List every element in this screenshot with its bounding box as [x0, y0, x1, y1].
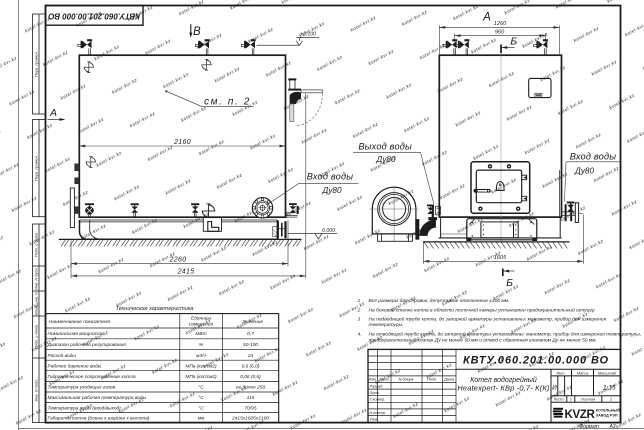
- svg-text:2: 2: [357, 308, 361, 314]
- svg-text:Гидравлическое сопротивление к: Гидравлическое сопротивление котла: [48, 374, 136, 380]
- svg-text:Пров.: Пров.: [370, 390, 380, 395]
- svg-text:KVZR: KVZR: [565, 408, 596, 421]
- svg-text:70/95: 70/95: [244, 405, 256, 411]
- svg-text:Габариты котла (длина х ширина: Габариты котла (длина х ширина х высота): [48, 416, 150, 422]
- svg-text:3: 3: [358, 316, 361, 322]
- svg-text:°С: °С: [198, 385, 204, 391]
- svg-text:м3/ч: м3/ч: [196, 353, 206, 359]
- svg-text:1260: 1260: [494, 21, 507, 27]
- svg-text:В: В: [193, 26, 201, 38]
- svg-text:960: 960: [495, 29, 505, 35]
- svg-text:+2.100: +2.100: [300, 32, 316, 38]
- svg-text:Б: Б: [506, 277, 513, 289]
- svg-text:Т.контр.: Т.контр.: [370, 397, 386, 402]
- svg-text:%: %: [199, 342, 204, 348]
- svg-text:Подп. и дата: Подп. и дата: [34, 324, 39, 349]
- svg-text:мм: мм: [198, 417, 205, 422]
- svg-text:Номинальная мощность: Номинальная мощность: [48, 331, 105, 337]
- svg-text:115: 115: [247, 395, 255, 401]
- svg-text:Ду80: Ду80: [574, 166, 595, 175]
- svg-text:0,06 (0,6): 0,06 (0,6): [240, 374, 261, 380]
- svg-text:1: 1: [570, 396, 572, 401]
- svg-text:Утв.: Утв.: [370, 417, 379, 422]
- svg-text:Формат: Формат: [579, 424, 599, 430]
- svg-text:А3: А3: [608, 424, 615, 430]
- svg-text:2415х1605х2100: 2415х1605х2100: [231, 416, 269, 422]
- svg-text:Выход воды: Выход воды: [358, 142, 412, 152]
- svg-text:Листов: Листов: [580, 396, 595, 401]
- svg-text:1605: 1605: [494, 255, 507, 261]
- svg-text:2260: 2260: [169, 256, 187, 263]
- svg-text:Котел водогрейный: Котел водогрейный: [470, 376, 537, 384]
- svg-text:На боковой стенке котла в обла: На боковой стенке котла в области топочн…: [369, 307, 596, 314]
- svg-text:Ду80: Ду80: [375, 155, 396, 164]
- svg-text:см. п. 2: см. п. 2: [204, 97, 251, 108]
- svg-text:Дата: Дата: [443, 377, 455, 382]
- svg-text:2160: 2160: [173, 139, 191, 146]
- svg-text:Подп. и дата: Подп. и дата: [34, 232, 39, 257]
- svg-text:ЗАВОД РЭП: ЗАВОД РЭП: [596, 414, 618, 418]
- svg-text:1:15: 1:15: [603, 384, 616, 391]
- svg-text:Лист: Лист: [552, 396, 564, 401]
- svg-text:МВт: МВт: [195, 331, 206, 337]
- svg-text:Расход воды: Расход воды: [48, 353, 77, 359]
- svg-text:Температура уходящих газов: Температура уходящих газов: [48, 385, 116, 391]
- svg-text:не более 250: не более 250: [236, 385, 266, 391]
- svg-text:МПа (кгс/см2): МПа (кгс/см2): [185, 363, 217, 369]
- svg-text:Значение: Значение: [242, 319, 263, 325]
- svg-text:24: 24: [247, 353, 254, 359]
- svg-text:А: А: [49, 107, 57, 119]
- svg-text:Масса: Масса: [577, 371, 589, 376]
- svg-text:Единицы: Единицы: [191, 315, 212, 321]
- svg-text:Изм.: Изм.: [369, 377, 377, 382]
- svg-text:Лит.: Лит.: [555, 371, 565, 376]
- svg-text:Перв. примен.: Перв. примен.: [34, 155, 39, 181]
- svg-text:Температура воды (вход/выход): Температура воды (вход/выход): [48, 405, 122, 411]
- svg-text:А: А: [482, 11, 491, 23]
- svg-text:Взам. инв. N: Взам. инв. N: [34, 292, 39, 315]
- svg-text:Разраб.: Разраб.: [370, 384, 384, 389]
- svg-text:На подводящей трубе котла, до: На подводящей трубе котла, до запорной а…: [369, 315, 607, 322]
- svg-text:Рабочее давление воды: Рабочее давление воды: [48, 363, 102, 369]
- svg-text:И: И: [552, 384, 557, 391]
- svg-text:Все размеры для справок, допус: Все размеры для справок, допустимое откл…: [369, 298, 510, 304]
- svg-text:Инв. N подл.: Инв. N подл.: [34, 379, 39, 402]
- svg-text:2415: 2415: [177, 269, 195, 276]
- svg-text:0.000: 0.000: [322, 228, 335, 234]
- svg-text:измерения: измерения: [189, 322, 213, 327]
- svg-text:МПа (кгс/см2): МПа (кгс/см2): [185, 374, 217, 380]
- svg-text:N докум.: N докум.: [399, 377, 415, 382]
- svg-text:Ду80: Ду80: [321, 186, 342, 195]
- svg-text:Лист: Лист: [378, 377, 390, 382]
- svg-text:КВТУ.060.201.00.000 ВО: КВТУ.060.201.00.000 ВО: [48, 12, 141, 21]
- svg-text:На отводящей трубе котла, до з: На отводящей трубе котла, до запорной ар…: [369, 330, 642, 337]
- svg-text:Вход воды: Вход воды: [570, 152, 616, 162]
- svg-text:Heatexpert- КВр -0,7- К(К): Heatexpert- КВр -0,7- К(К): [457, 384, 550, 393]
- svg-text:КВТУ.060.201.00.000 ВО: КВТУ.060.201.00.000 ВО: [463, 354, 609, 366]
- svg-text:температуры.: температуры.: [369, 323, 404, 328]
- svg-text:1: 1: [358, 298, 361, 304]
- svg-text:°С: °С: [198, 405, 204, 411]
- svg-text:Максимальная рабочая температу: Максимальная рабочая температура воды: [48, 395, 147, 401]
- svg-text:КОТЕЛЬНЫЙ: КОТЕЛЬНЫЙ: [596, 409, 620, 413]
- svg-text:Наименование показателя: Наименование показателя: [49, 319, 111, 325]
- svg-text:0,6 (6,0): 0,6 (6,0): [242, 363, 260, 369]
- svg-text:4.: 4.: [358, 331, 362, 337]
- svg-text:Н.контр.: Н.контр.: [370, 410, 386, 415]
- svg-text:Вход воды: Вход воды: [307, 172, 353, 182]
- svg-text:Масштаб: Масштаб: [598, 371, 617, 376]
- svg-text:Перв. примен.: Перв. примен.: [34, 51, 39, 77]
- svg-text:50-100: 50-100: [243, 342, 258, 348]
- svg-text:Техническая характеристика: Техническая характеристика: [116, 306, 194, 312]
- svg-text:Инв. N дубл.: Инв. N дубл.: [34, 267, 39, 290]
- svg-text:0,7: 0,7: [247, 331, 254, 337]
- svg-text:Подп.: Подп.: [427, 377, 437, 382]
- svg-text:Диапазон рабочего регулировани: Диапазон рабочего регулирования: [47, 342, 127, 348]
- svg-text:Б: Б: [510, 35, 517, 47]
- svg-text:предохранительный клапан Ду н: предохранительный клапан Ду не менее 50 …: [369, 337, 597, 344]
- svg-text:°С: °С: [198, 395, 204, 401]
